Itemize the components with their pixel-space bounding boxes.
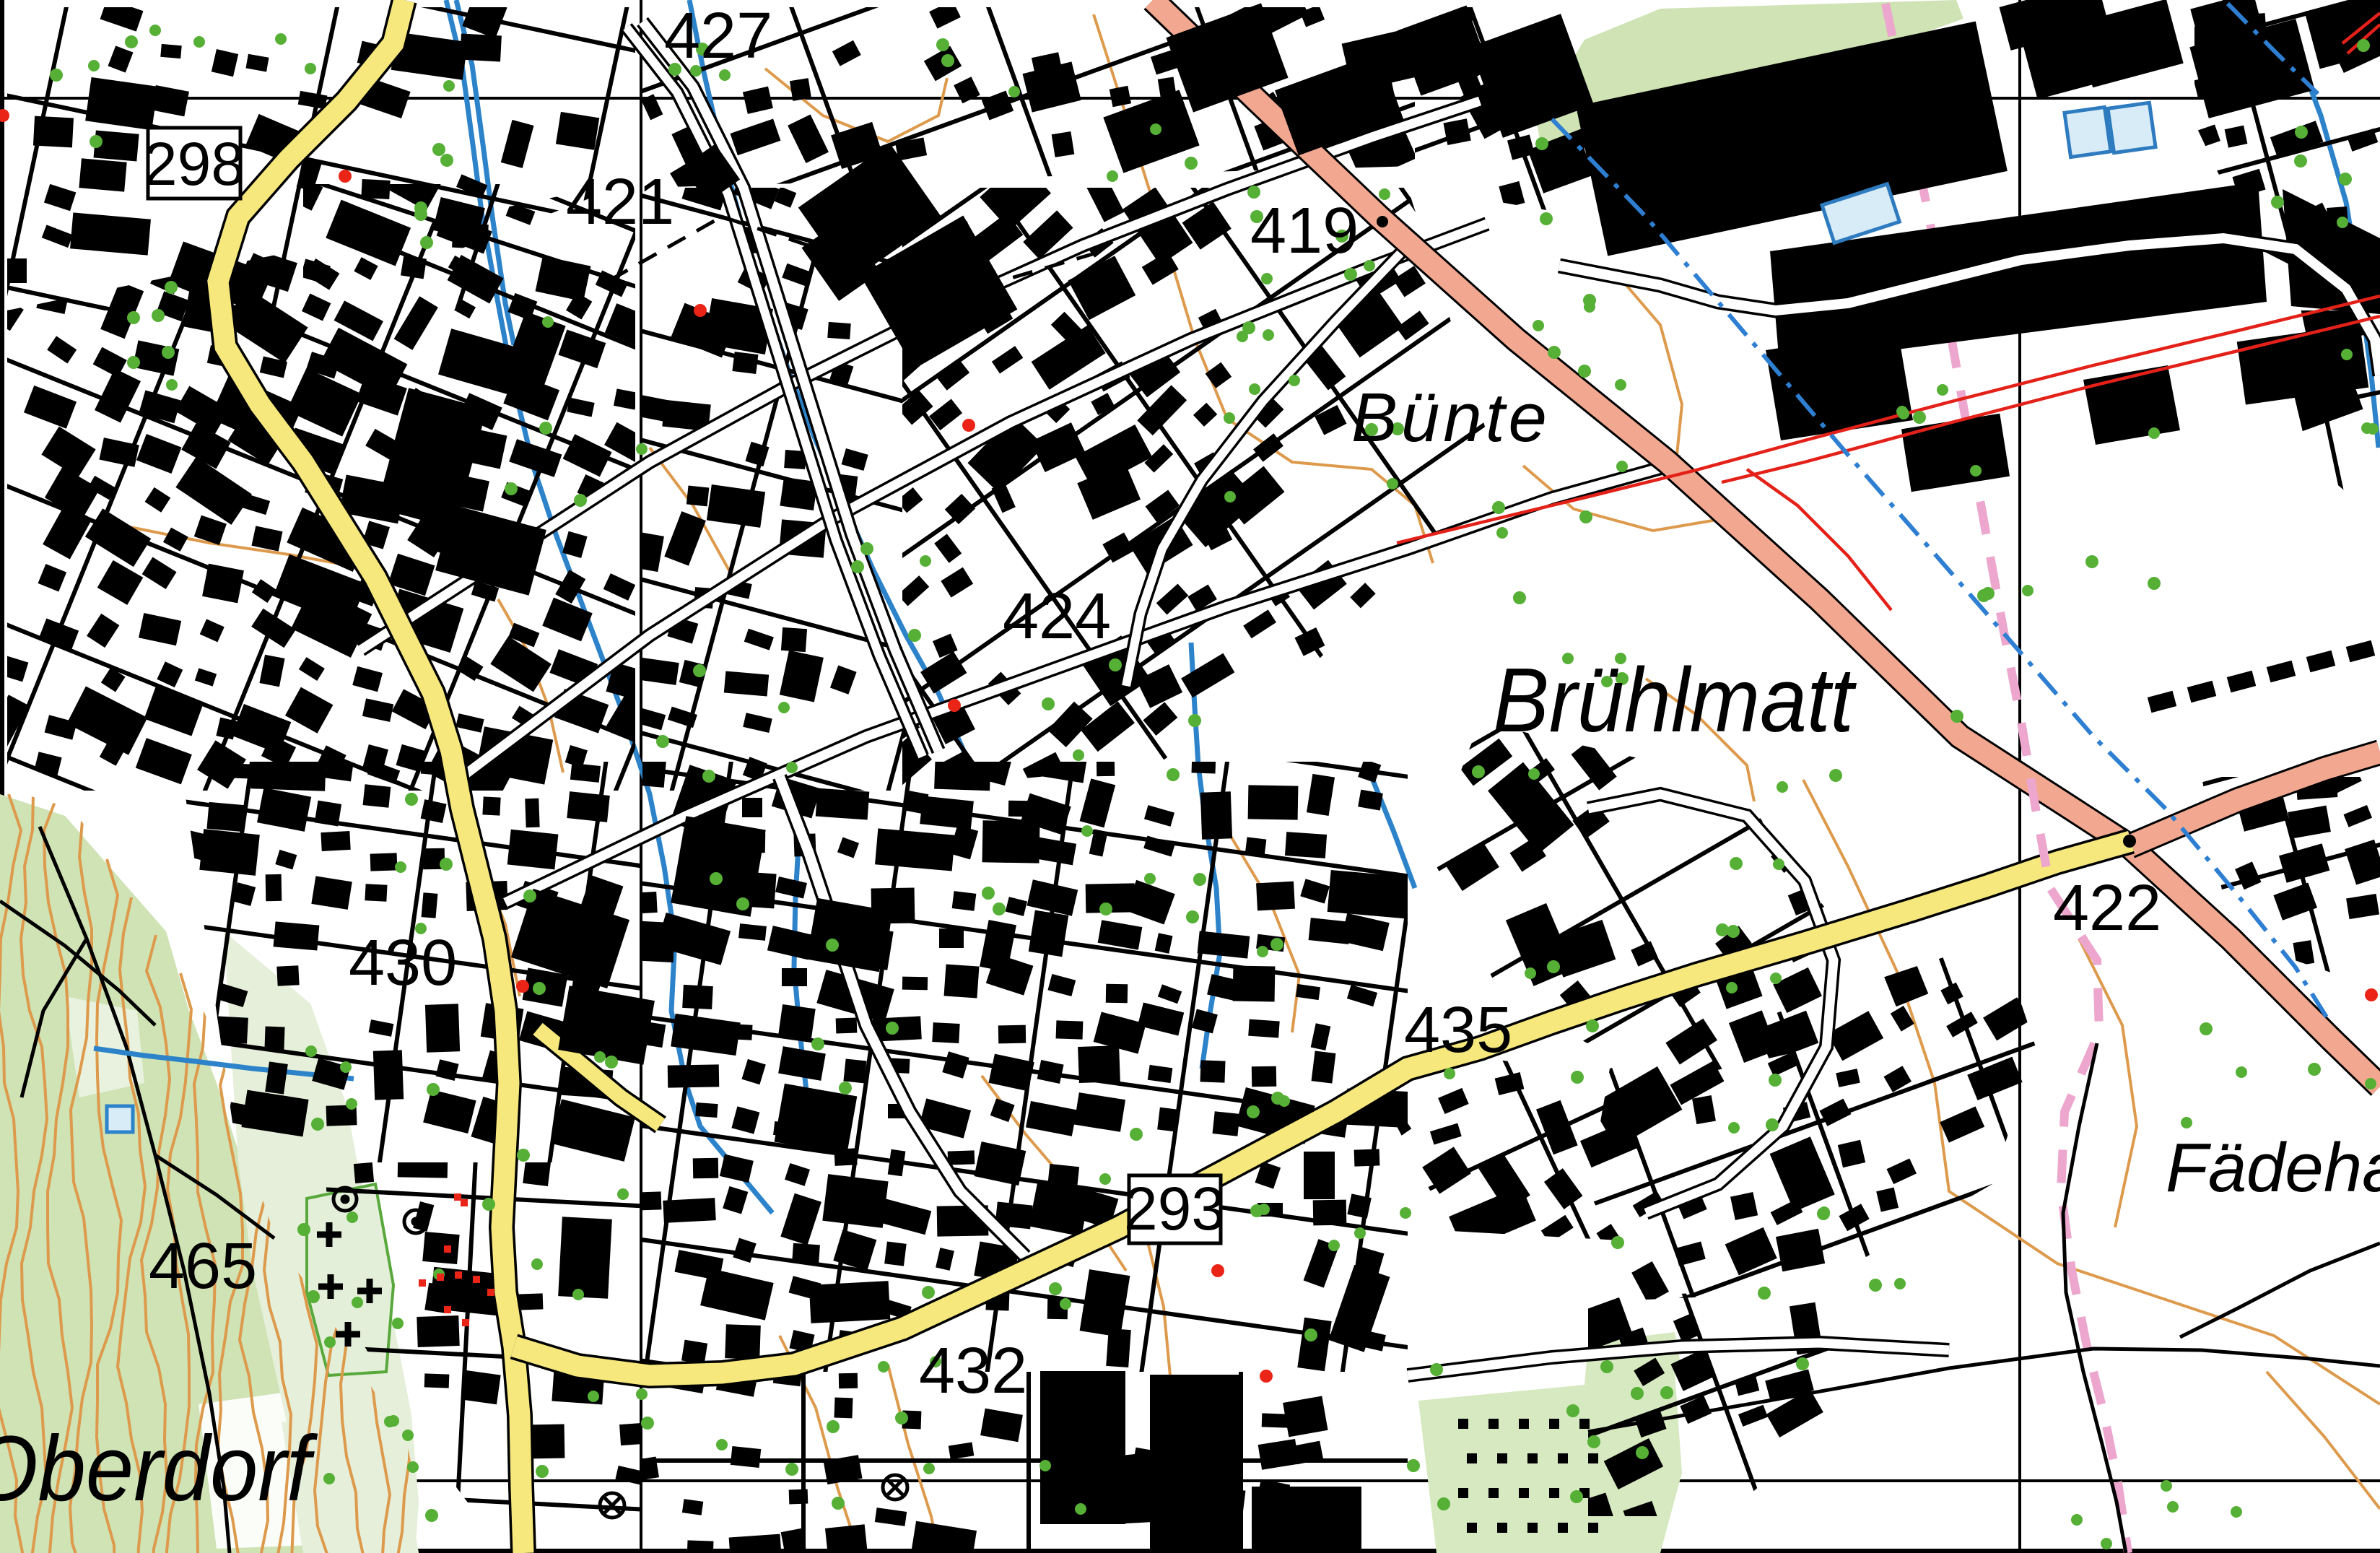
svg-text:Brühlmatt: Brühlmatt: [1493, 649, 1857, 751]
svg-text:419: 419: [1250, 195, 1359, 267]
svg-text:298: 298: [144, 130, 245, 198]
svg-text:Bünte: Bünte: [1351, 379, 1551, 456]
svg-text:432: 432: [919, 1335, 1027, 1407]
svg-text:465: 465: [149, 1230, 257, 1302]
svg-text:293: 293: [1124, 1175, 1225, 1243]
svg-text:Fädehau: Fädehau: [2166, 1129, 2380, 1206]
svg-text:430: 430: [349, 927, 457, 999]
svg-text:Oberdorf: Oberdorf: [0, 1417, 318, 1521]
svg-text:427: 427: [664, 0, 772, 72]
svg-text:424: 424: [1003, 580, 1111, 653]
svg-text:422: 422: [2053, 872, 2161, 944]
svg-text:421: 421: [566, 166, 674, 238]
svg-text:435: 435: [1404, 994, 1512, 1066]
